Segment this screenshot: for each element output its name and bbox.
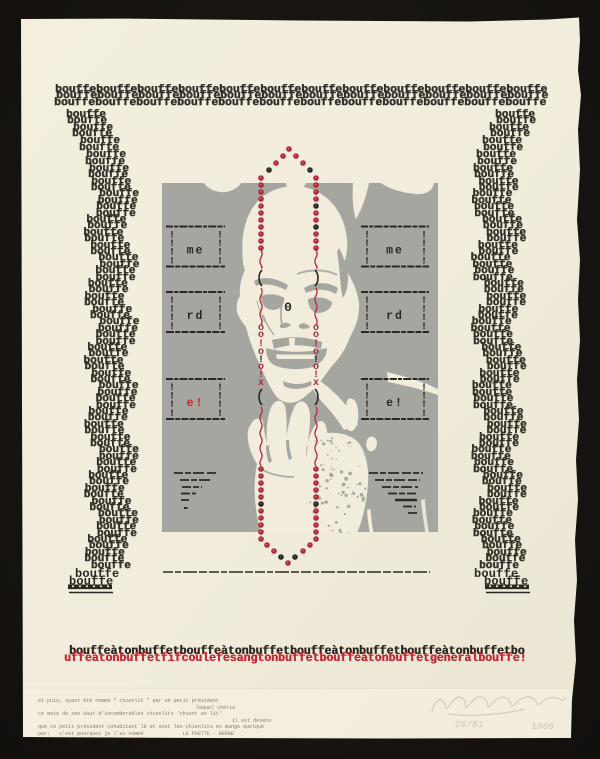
svg-text:!: ! — [421, 256, 427, 267]
svg-text:!: ! — [217, 409, 223, 420]
svg-text:!: ! — [169, 409, 175, 420]
svg-text:x: x — [313, 378, 319, 389]
svg-text:!: ! — [421, 409, 427, 420]
svg-text:0: 0 — [284, 300, 292, 315]
svg-text:e!: e! — [187, 397, 205, 410]
svg-text:1968: 1968 — [531, 721, 554, 732]
svg-text:rd: rd — [187, 310, 205, 323]
svg-text:!: ! — [217, 256, 223, 267]
svg-text:!: ! — [364, 256, 370, 267]
svg-text:!: ! — [169, 256, 175, 267]
svg-text:!: ! — [364, 409, 370, 420]
svg-text:26/81: 26/81 — [455, 719, 484, 730]
svg-text:!: ! — [364, 322, 370, 333]
svg-text:x: x — [258, 378, 264, 389]
svg-text:me: me — [386, 245, 404, 258]
svg-text:rd: rd — [386, 310, 404, 323]
svg-text:e!: e! — [386, 397, 404, 410]
svg-text:!: ! — [421, 322, 427, 333]
svg-text:me: me — [187, 245, 205, 258]
svg-text:!: ! — [217, 322, 223, 333]
svg-text:!: ! — [169, 322, 175, 333]
